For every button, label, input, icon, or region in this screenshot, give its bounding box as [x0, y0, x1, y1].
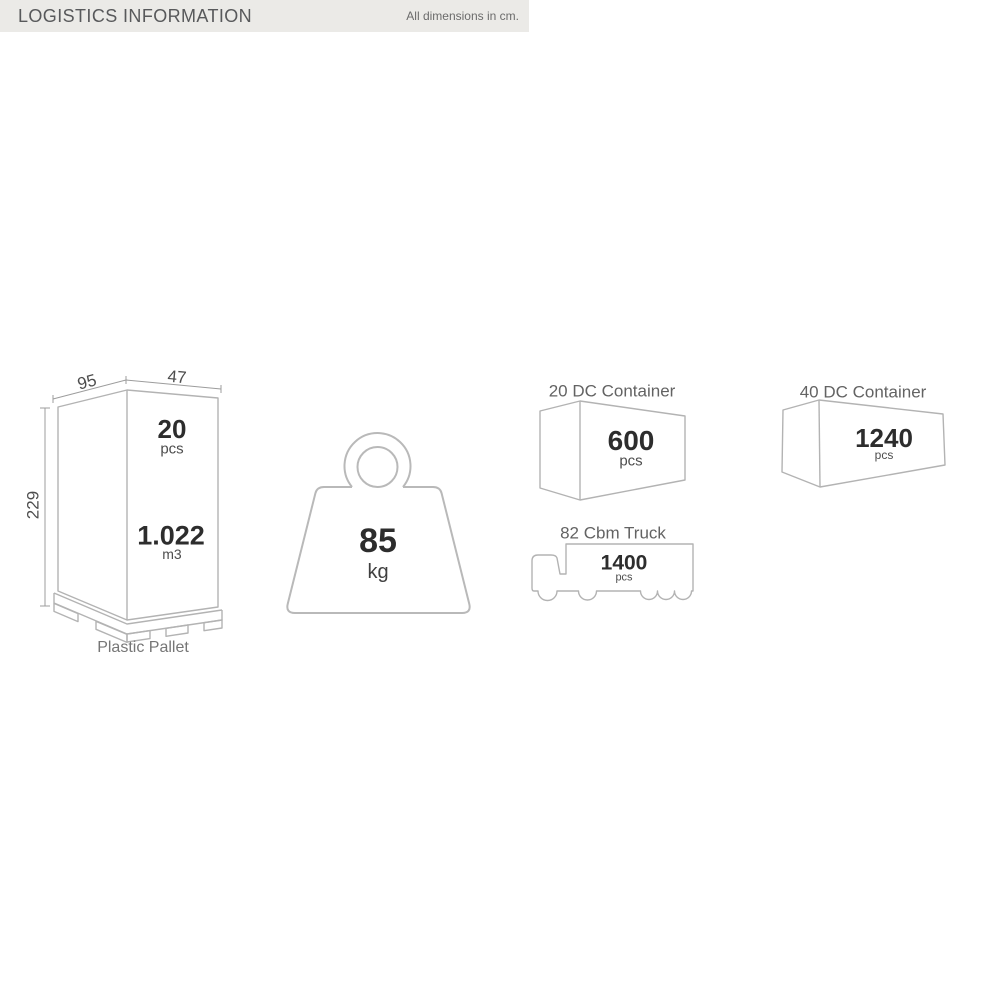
pallet-foot — [54, 603, 78, 621]
pallet-qty-value: 20 — [158, 416, 187, 442]
truck-unit: pcs — [615, 573, 632, 584]
pallet-deck-top-edge — [54, 593, 222, 624]
container-20dc-unit: pcs — [619, 454, 642, 469]
pallet-qty-unit: pcs — [160, 442, 183, 457]
logistics-information-section: LOGISTICS INFORMATION All dimensions in … — [0, 0, 1000, 1000]
weight-unit: kg — [367, 562, 388, 582]
pallet-box-diagram — [40, 376, 222, 642]
weight-ring-outer — [345, 433, 411, 487]
container-40dc-unit: pcs — [875, 449, 894, 461]
weight-value: 85 — [359, 524, 397, 558]
container-20dc-title: 20 DC Container — [549, 383, 676, 400]
truck-title: 82 Cbm Truck — [560, 525, 666, 542]
weight-ring-inner — [358, 447, 398, 487]
pallet-volume-unit: m3 — [162, 547, 181, 561]
container-40dc-title: 40 DC Container — [800, 384, 927, 401]
pallet-depth-value: 47 — [167, 368, 187, 387]
pallet-height-value: 229 — [25, 491, 42, 519]
pallet-box-outline — [58, 390, 218, 620]
container-40dc-front-edge — [819, 400, 820, 487]
container-20dc-qty: 600 — [608, 427, 655, 455]
truck-qty: 1400 — [601, 553, 648, 574]
pallet-foot — [204, 620, 222, 631]
pallet-foot — [166, 625, 188, 636]
logistics-diagrams — [0, 0, 1000, 1000]
pallet-width-value: 95 — [76, 371, 99, 392]
pallet-caption: Plastic Pallet — [97, 640, 189, 656]
